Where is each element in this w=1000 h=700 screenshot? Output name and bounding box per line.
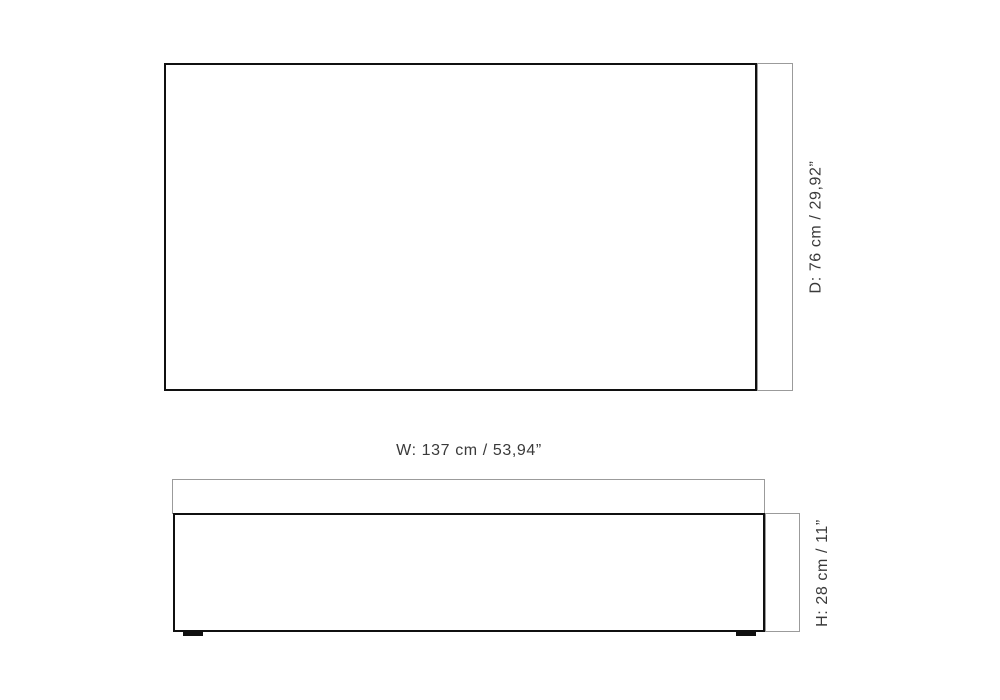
- height-dimension-bracket: [765, 513, 800, 632]
- height-dimension-text: H: 28 cm / 11”: [814, 519, 832, 627]
- front-view-outline: [173, 513, 765, 632]
- depth-dimension-text: D: 76 cm / 29,92”: [807, 161, 825, 294]
- width-dimension-bracket: [172, 479, 765, 514]
- right-foot: [736, 631, 756, 636]
- width-dimension-label: W: 137 cm / 53,94”: [173, 442, 765, 462]
- height-dimension-label: H: 28 cm / 11”: [800, 509, 846, 636]
- left-foot: [183, 631, 203, 636]
- top-view-outline: [164, 63, 757, 391]
- dimension-diagram: D: 76 cm / 29,92” W: 137 cm / 53,94” H: …: [0, 0, 1000, 700]
- depth-dimension-bracket: [757, 63, 793, 391]
- depth-dimension-label: D: 76 cm / 29,92”: [793, 63, 839, 391]
